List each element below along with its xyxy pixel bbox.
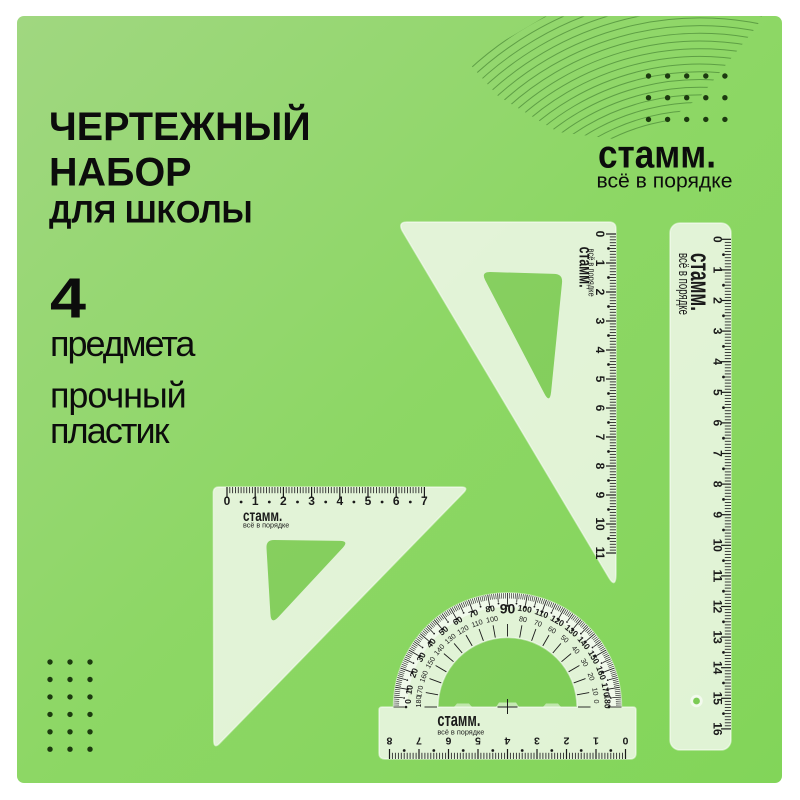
svg-text:3: 3 — [534, 735, 540, 747]
svg-text:2: 2 — [563, 735, 569, 747]
svg-text:11: 11 — [710, 570, 724, 583]
svg-text:предмета: предмета — [50, 323, 196, 364]
svg-text:10: 10 — [404, 684, 416, 695]
svg-text:4: 4 — [593, 347, 607, 354]
svg-text:0: 0 — [593, 231, 607, 238]
svg-text:3: 3 — [593, 318, 607, 325]
svg-text:6: 6 — [710, 420, 724, 427]
svg-text:14: 14 — [710, 661, 724, 675]
svg-text:ЧЕРТЕЖНЫЙ: ЧЕРТЕЖНЫЙ — [49, 104, 311, 149]
svg-text:0: 0 — [224, 494, 231, 508]
svg-text:всё в порядке: всё в порядке — [675, 253, 692, 315]
svg-text:80: 80 — [485, 603, 496, 615]
svg-text:10: 10 — [590, 687, 600, 696]
svg-text:13: 13 — [710, 630, 724, 644]
svg-text:9: 9 — [710, 511, 724, 518]
svg-text:10: 10 — [710, 539, 724, 553]
svg-text:всё в порядке: всё в порядке — [597, 170, 733, 193]
svg-text:10: 10 — [593, 517, 607, 531]
svg-text:11: 11 — [593, 547, 607, 560]
svg-text:5: 5 — [365, 494, 372, 508]
svg-text:12: 12 — [710, 600, 724, 614]
svg-text:0: 0 — [403, 699, 413, 704]
svg-text:4: 4 — [50, 267, 86, 331]
svg-text:4: 4 — [336, 494, 343, 508]
svg-text:7: 7 — [416, 735, 422, 747]
svg-text:15: 15 — [710, 692, 724, 706]
svg-text:6: 6 — [393, 494, 400, 508]
svg-text:8: 8 — [710, 481, 724, 488]
svg-text:7: 7 — [421, 494, 428, 508]
svg-text:всё в порядке: всё в порядке — [437, 728, 484, 737]
svg-text:4: 4 — [710, 358, 724, 365]
svg-text:3: 3 — [710, 328, 724, 335]
svg-text:0: 0 — [710, 236, 724, 243]
svg-text:8: 8 — [593, 463, 607, 470]
svg-text:пластик: пластик — [50, 410, 170, 451]
svg-text:180: 180 — [414, 696, 423, 708]
svg-text:2: 2 — [280, 494, 287, 508]
svg-text:180: 180 — [602, 694, 612, 708]
svg-text:1: 1 — [252, 494, 259, 508]
svg-text:7: 7 — [593, 434, 607, 441]
svg-text:0: 0 — [622, 735, 628, 747]
svg-text:9: 9 — [593, 492, 607, 499]
svg-text:НАБОР: НАБОР — [49, 151, 192, 195]
svg-text:1: 1 — [593, 735, 599, 747]
svg-text:4: 4 — [504, 735, 510, 747]
svg-text:всё в порядке: всё в порядке — [243, 521, 289, 530]
svg-text:ДЛЯ ШКОЛЫ: ДЛЯ ШКОЛЫ — [49, 194, 252, 230]
svg-text:6: 6 — [593, 405, 607, 412]
svg-text:16: 16 — [710, 722, 724, 736]
svg-text:0: 0 — [592, 700, 601, 704]
svg-text:7: 7 — [710, 450, 724, 457]
svg-text:90: 90 — [500, 601, 516, 617]
svg-text:8: 8 — [386, 735, 392, 747]
svg-text:3: 3 — [308, 494, 315, 508]
svg-text:всё в порядке: всё в порядке — [586, 249, 597, 297]
svg-text:5: 5 — [593, 376, 607, 383]
svg-text:5: 5 — [710, 389, 724, 396]
svg-text:80: 80 — [518, 614, 527, 624]
